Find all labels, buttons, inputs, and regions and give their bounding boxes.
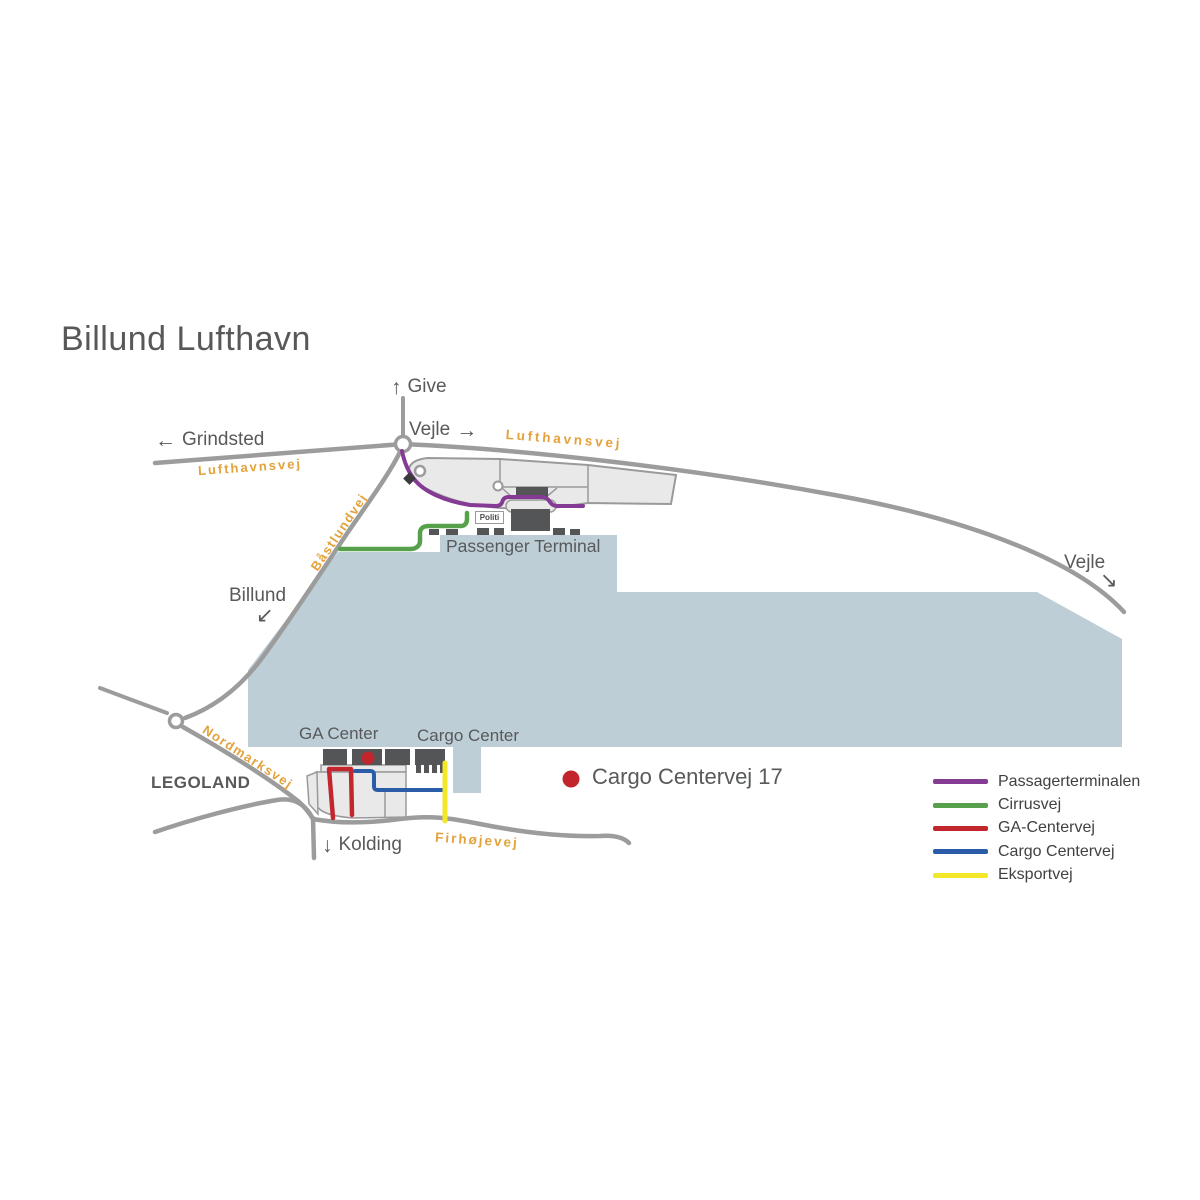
politi-label: Politi bbox=[480, 513, 500, 522]
gate-block bbox=[429, 529, 439, 535]
direction-vejle-right-arrow: ↘ bbox=[1100, 570, 1118, 591]
gate-block bbox=[494, 528, 504, 535]
cargo-center-label: Cargo Center bbox=[417, 726, 519, 746]
legend-label: Eksportvej bbox=[998, 866, 1073, 884]
ga-building bbox=[323, 749, 347, 765]
billund-airport-map: Billund Lufthavn ↑ Give Vejle → ← Grinds… bbox=[0, 0, 1200, 1200]
road-kolding bbox=[313, 818, 314, 858]
direction-billund-arrow: ↙ bbox=[256, 605, 274, 626]
map-graphics bbox=[0, 0, 1200, 1200]
legend-swatch-purple bbox=[933, 779, 988, 784]
cargo-dock bbox=[416, 765, 421, 773]
ga-building bbox=[385, 749, 410, 765]
cargo-dock bbox=[432, 765, 437, 773]
gate-block bbox=[446, 529, 458, 535]
page-title: Billund Lufthavn bbox=[61, 320, 311, 359]
legend-row-cargo-centervej: Cargo Centervej bbox=[933, 840, 1140, 863]
ga-center-label: GA Center bbox=[299, 724, 378, 744]
direction-give: ↑ Give bbox=[391, 376, 447, 398]
direction-give-label: Give bbox=[408, 376, 447, 398]
road-legoland bbox=[155, 799, 313, 832]
legend-label: GA-Centervej bbox=[998, 819, 1095, 837]
ga-plot-left-strip bbox=[307, 772, 318, 814]
legend-label: Passagerterminalen bbox=[998, 773, 1140, 791]
legend-label: Cargo Centervej bbox=[998, 843, 1115, 861]
legend-swatch-yellow bbox=[933, 873, 988, 878]
direction-grindsted-label: Grindsted bbox=[182, 429, 264, 451]
direction-grindsted: ← Grindsted bbox=[155, 429, 264, 451]
legend-swatch-green bbox=[933, 803, 988, 808]
passenger-terminal-label: Passenger Terminal bbox=[446, 536, 600, 557]
mini-roundabout-parking-entry bbox=[415, 466, 425, 476]
arrow-down-right-icon: ↘ bbox=[1100, 570, 1118, 591]
direction-vejle-top-label: Vejle bbox=[409, 419, 450, 441]
arrow-right-icon: → bbox=[456, 420, 477, 441]
legend-swatch-blue bbox=[933, 849, 988, 854]
cargo-building bbox=[415, 749, 445, 765]
arrow-down-icon: ↓ bbox=[322, 835, 333, 856]
gate-block bbox=[553, 528, 565, 535]
legend-row-ga-centervej: GA-Centervej bbox=[933, 817, 1140, 840]
legend-swatch-red bbox=[933, 826, 988, 831]
roundabout-legoland bbox=[170, 715, 183, 728]
direction-kolding-label: Kolding bbox=[339, 834, 402, 856]
direction-kolding: ↓ Kolding bbox=[322, 834, 402, 856]
gate-block bbox=[570, 529, 580, 535]
legend: Passagerterminalen Cirrusvej GA-Centerve… bbox=[933, 770, 1140, 887]
cargo-centervej17-label: Cargo Centervej 17 bbox=[592, 764, 783, 790]
legend-row-cirrusvej: Cirrusvej bbox=[933, 793, 1140, 816]
legend-label: Cirrusvej bbox=[998, 796, 1061, 814]
legoland-label: LEGOLAND bbox=[151, 773, 250, 793]
arrow-left-icon: ← bbox=[155, 430, 176, 451]
ga-center-location-dot bbox=[362, 752, 375, 765]
gate-block bbox=[477, 528, 489, 535]
road-nordmarksvej-stub bbox=[100, 688, 167, 713]
legend-row-passagerterminalen: Passagerterminalen bbox=[933, 770, 1140, 793]
direction-vejle-top: Vejle → bbox=[409, 419, 477, 441]
mini-roundabout-terminal bbox=[494, 482, 503, 491]
cargo-centervej17-dot bbox=[563, 771, 580, 788]
legend-row-eksportvej: Eksportvej bbox=[933, 864, 1140, 887]
cargo-dock bbox=[424, 765, 429, 773]
terminal-building-main bbox=[511, 509, 550, 531]
politi-box: Politi bbox=[475, 511, 504, 524]
arrow-down-left-icon: ↙ bbox=[256, 605, 274, 626]
arrow-up-icon: ↑ bbox=[391, 377, 402, 398]
